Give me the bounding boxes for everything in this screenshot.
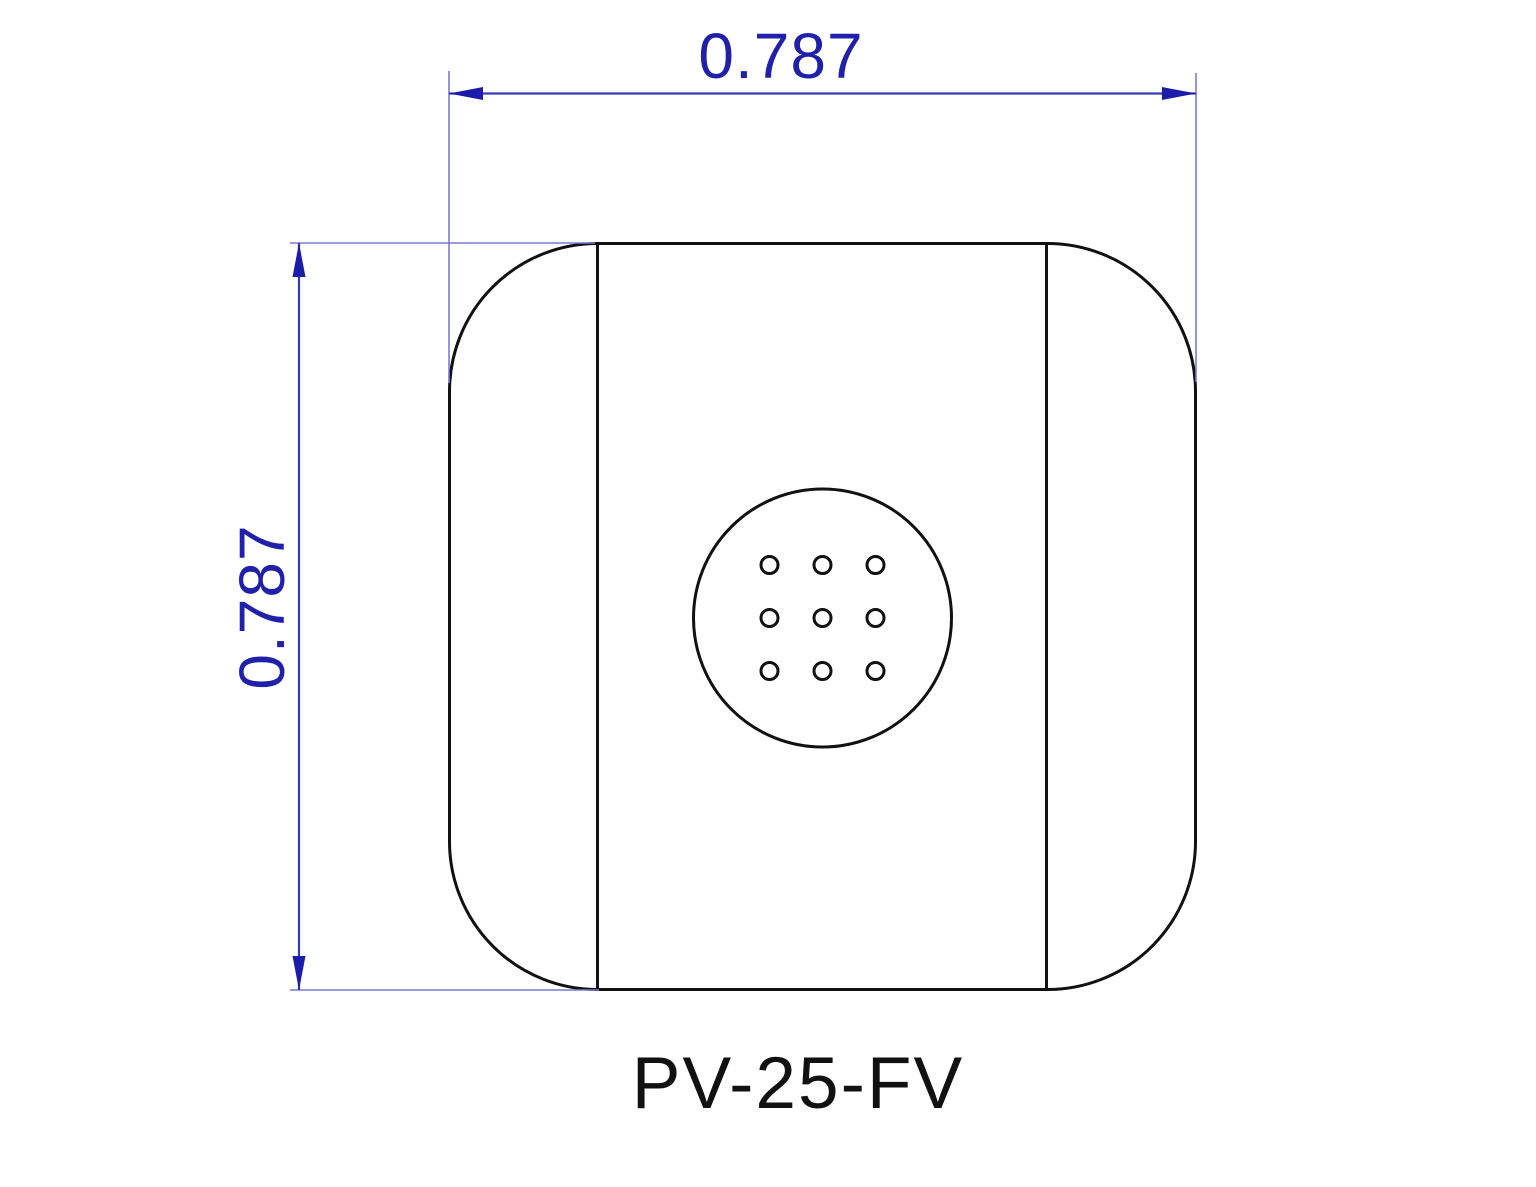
center-circle	[694, 489, 952, 747]
height-extension-lines	[290, 243, 599, 990]
width-dimension-value: 0.787	[698, 20, 863, 92]
hole	[761, 663, 778, 680]
arrow-up-icon	[293, 243, 306, 277]
hole	[814, 557, 831, 574]
part-outline	[450, 244, 1196, 990]
width-dimension: 0.787	[449, 20, 1196, 383]
hole	[867, 610, 884, 627]
arrow-down-icon	[293, 956, 306, 990]
part-label: PV-25-FV	[632, 1043, 964, 1124]
hole	[761, 557, 778, 574]
technical-drawing: 0.787 0.787 PV-25-FV	[0, 0, 1536, 1187]
width-extension-lines	[449, 71, 1196, 383]
drawing-canvas: 0.787 0.787 PV-25-FV	[0, 0, 1536, 1187]
arrow-right-icon	[1162, 87, 1196, 100]
height-dimension: 0.787	[226, 243, 599, 990]
hole	[814, 610, 831, 627]
hole-grid	[761, 557, 884, 680]
height-dimension-value: 0.787	[226, 524, 298, 689]
hole	[814, 663, 831, 680]
arrow-left-icon	[449, 87, 483, 100]
part-outline-group	[450, 244, 1196, 990]
hole	[761, 610, 778, 627]
hole	[867, 557, 884, 574]
hole	[867, 663, 884, 680]
